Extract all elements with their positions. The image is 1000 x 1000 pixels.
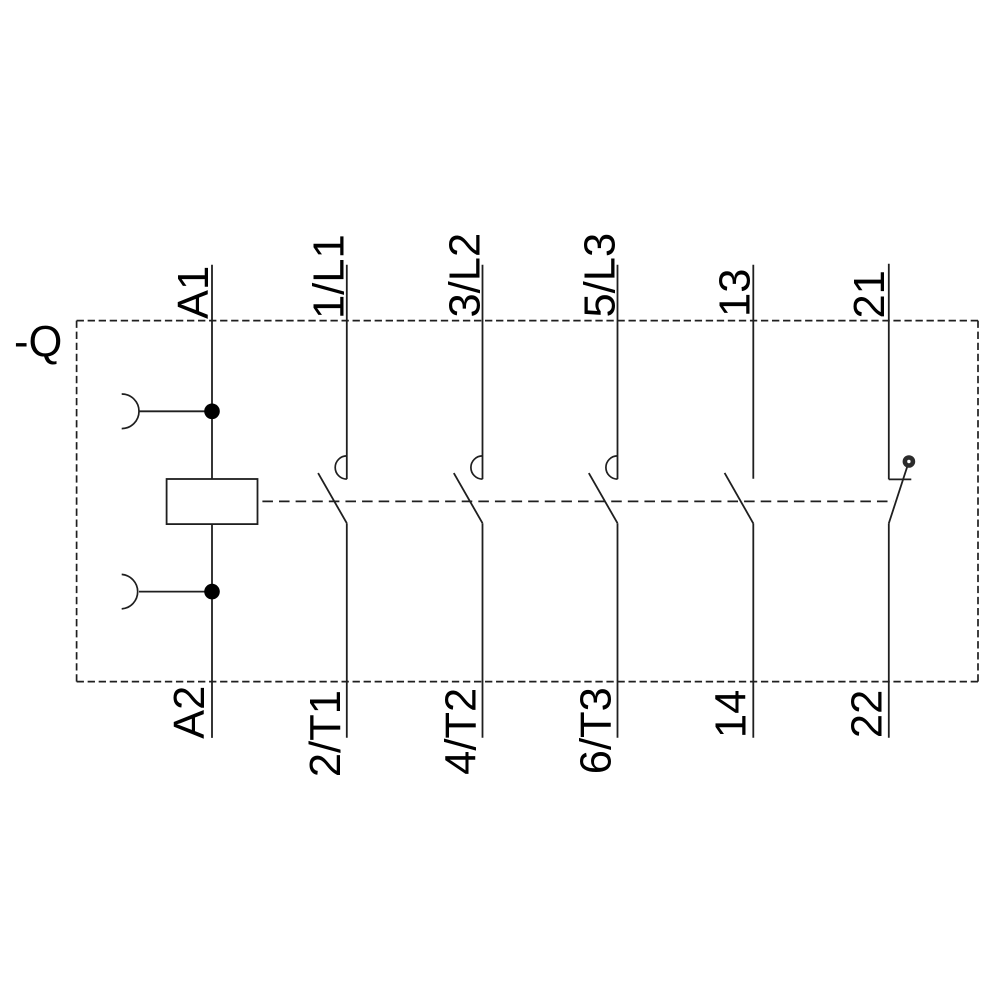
svg-text:21: 21 (846, 270, 894, 318)
svg-text:22: 22 (843, 690, 891, 738)
svg-text:A2: A2 (166, 686, 214, 739)
svg-text:2/T1: 2/T1 (302, 690, 350, 777)
svg-text:A1: A1 (170, 266, 218, 319)
svg-text:-Q: -Q (14, 319, 62, 367)
svg-text:14: 14 (707, 690, 755, 738)
svg-text:13: 13 (711, 269, 759, 317)
svg-text:4/T2: 4/T2 (438, 688, 486, 775)
svg-text:6/T3: 6/T3 (573, 687, 621, 774)
